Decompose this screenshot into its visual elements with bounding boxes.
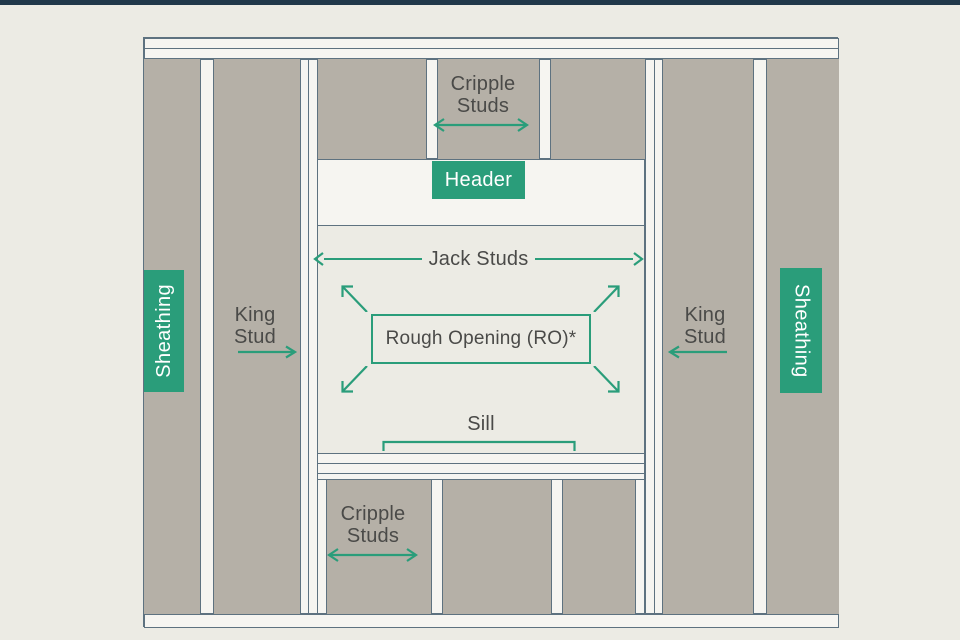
king-right-line1: King xyxy=(685,304,726,326)
top-border-bar xyxy=(0,0,960,5)
king-stud-right-label: King Stud xyxy=(664,304,746,349)
sheathing-right-label: Sheathing xyxy=(790,284,813,378)
header-badge: Header xyxy=(432,161,525,199)
diagonal-arrow-bottom-right-icon xyxy=(593,366,623,396)
rough-opening-label: Rough Opening (RO)* xyxy=(386,328,577,350)
arrow-line xyxy=(324,258,422,260)
cripple-studs-bottom-line2: Studs xyxy=(347,525,399,547)
jack-studs-label: Jack Studs xyxy=(422,248,536,271)
header-label: Header xyxy=(445,169,512,192)
framing-diagram: Cripple Studs Header Jack Studs Rough Op… xyxy=(0,0,960,640)
jack-studs-arrow: Jack Studs xyxy=(313,249,644,269)
arrow-left-icon xyxy=(667,345,729,359)
rough-opening-box: Rough Opening (RO)* xyxy=(371,314,591,364)
diagonal-arrow-bottom-left-icon xyxy=(338,366,368,396)
double-arrow-icon xyxy=(431,117,531,133)
top-plate-lower xyxy=(144,48,839,59)
arrow-right-icon xyxy=(236,345,298,359)
stud-left-field xyxy=(200,59,214,614)
king-left-line1: King xyxy=(235,304,276,326)
cripple-studs-bottom-line1: Cripple xyxy=(341,503,406,525)
diagonal-arrow-top-right-icon xyxy=(593,282,623,312)
sill-member-base xyxy=(317,473,645,480)
sheathing-left-badge: Sheathing xyxy=(144,270,184,392)
sill-bracket-icon xyxy=(382,440,576,452)
arrow-line xyxy=(535,258,633,260)
diagonal-arrow-top-left-icon xyxy=(338,282,368,312)
lower-cripple-stud-4 xyxy=(635,479,645,614)
lower-cripple-stud-3 xyxy=(551,479,563,614)
chevron-right-icon xyxy=(633,251,644,267)
sheathing-right-badge: Sheathing xyxy=(780,268,822,393)
lower-cripple-stud-2 xyxy=(431,479,443,614)
sill-label: Sill xyxy=(431,413,531,435)
cripple-studs-bottom-label: Cripple Studs xyxy=(317,503,429,548)
bottom-plate xyxy=(144,614,839,628)
sheathing-left-label: Sheathing xyxy=(153,284,176,378)
king-stud-left-label: King Stud xyxy=(214,304,296,349)
cripple-studs-top-line1: Cripple xyxy=(451,73,516,95)
double-arrow-icon xyxy=(325,547,420,563)
sill-text: Sill xyxy=(467,413,494,435)
stud-right-field xyxy=(753,59,767,614)
cripple-studs-top-label: Cripple Studs xyxy=(417,73,549,118)
chevron-left-icon xyxy=(313,251,324,267)
king-stud-right xyxy=(654,59,663,614)
cripple-studs-top-line2: Studs xyxy=(457,95,509,117)
